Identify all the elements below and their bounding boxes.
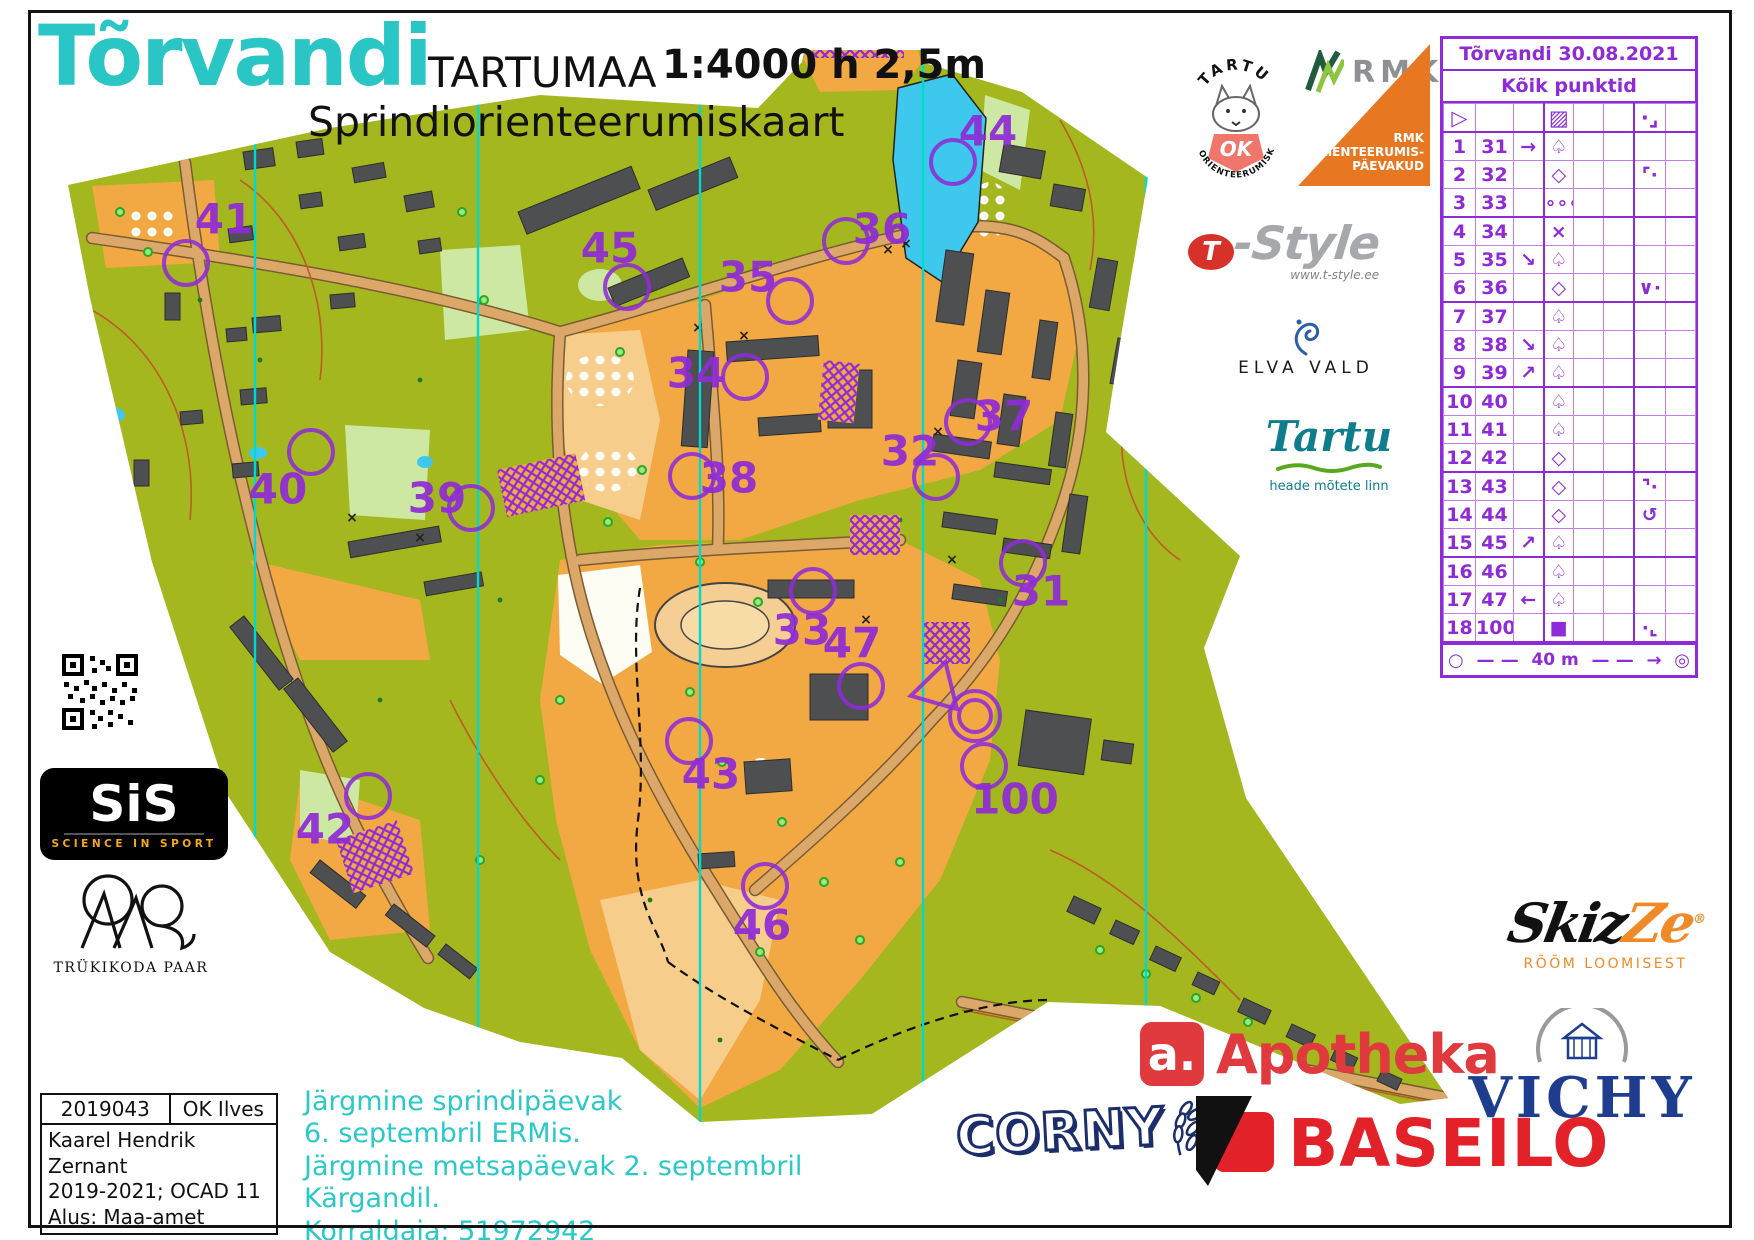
cd-col-g: ⌜· (1634, 161, 1666, 189)
last-control-symbol: ○ (1448, 650, 1464, 671)
cd-col-e (1574, 302, 1604, 331)
corny-name: CORNY (955, 1097, 1166, 1168)
rmk-paevakud-logo: RMK ORIENTEERUMIS- PÄEVAKUD (1298, 44, 1430, 186)
cd-col-e (1574, 614, 1604, 643)
cd-col-f (1604, 359, 1634, 388)
control-row: 1545↗♤ (1444, 529, 1696, 558)
cd-col-f (1604, 614, 1634, 643)
cd-col-code: 44 (1476, 501, 1514, 529)
cd-col-no: 3 (1444, 189, 1476, 218)
tartu-city-logo: Tartu heade mõtete linn (1254, 416, 1404, 494)
orienteering-map: ××× ××× ××× 4144453635343732384039313347… (30, 50, 1460, 1140)
skizze-part2: Ze (1619, 891, 1698, 955)
lynx-icon (1213, 86, 1259, 131)
skizze-tagline: RÕÕM LOOMISEST (1498, 956, 1713, 972)
cd-col-code: 36 (1476, 274, 1514, 303)
cd-col-h (1666, 217, 1696, 246)
cd-col-f (1604, 444, 1634, 473)
elva-ornament-icon (1286, 314, 1326, 356)
tstyle-logo: T -Style www.t-style.ee (1188, 220, 1379, 282)
cd-col-h (1666, 416, 1696, 444)
sheet-course-name: Kõik punktid (1443, 71, 1695, 103)
cd-col-d: ♤ (1544, 529, 1574, 558)
cd-col-e (1574, 529, 1604, 558)
cd-col-code: 33 (1476, 189, 1514, 218)
sheet-title: Tõrvandi 30.08.2021 (1443, 39, 1695, 71)
control-description-sheet: Tõrvandi 30.08.2021 Kõik punktid ▷ ▨ ·⌟ … (1440, 36, 1698, 678)
control-row: 18100■·⌞ (1444, 614, 1696, 643)
cd-col-g (1634, 416, 1666, 444)
cd-col-no: 7 (1444, 302, 1476, 331)
ok-monogram: OK (1220, 137, 1254, 161)
control-number: 40 (249, 465, 307, 514)
control-number: 46 (733, 901, 791, 950)
cd-col-h (1666, 387, 1696, 416)
ok-tartu-top-text: TARTU (1195, 55, 1274, 89)
cd-col-g (1634, 132, 1666, 161)
control-number: 34 (667, 349, 725, 398)
control-number: 100 (971, 775, 1059, 824)
cd-col-e (1574, 472, 1604, 501)
cd-col-no: 15 (1444, 529, 1476, 558)
cd-col-no: 5 (1444, 246, 1476, 274)
cd-col-d: ♤ (1544, 246, 1574, 274)
control-number: 38 (700, 454, 758, 503)
cd-col-code: 39 (1476, 359, 1514, 388)
cd-col-no: 14 (1444, 501, 1476, 529)
cd-col-code: 46 (1476, 557, 1514, 586)
cd-col-g (1634, 444, 1666, 473)
tstyle-t-icon: T (1188, 234, 1234, 270)
cd-col-f (1604, 529, 1634, 558)
apotheka-a-icon: a. (1140, 1022, 1204, 1086)
cd-col-f (1604, 501, 1634, 529)
corny-logo: CORNY (954, 1089, 1220, 1173)
cd-col-no: 11 (1444, 416, 1476, 444)
cd-col-g (1634, 189, 1666, 218)
cd-col-g (1634, 586, 1666, 614)
map-poster: ××× ××× ××× 4144453635343732384039313347… (0, 0, 1754, 1240)
region-label: TARTUMAA (428, 48, 657, 97)
cd-col-f (1604, 217, 1634, 246)
cd-col-g (1634, 529, 1666, 558)
control-sheet-body: ▷ ▨ ·⌟ 131→♤232◇⌜·333∘∘∘434×535↘♤636◇∨·7… (1444, 104, 1696, 643)
map-info-box: 2019043 OK Ilves Kaarel Hendrik Zernant … (40, 1093, 278, 1235)
cd-col-e (1574, 416, 1604, 444)
cd-col-g (1634, 359, 1666, 388)
control-number: 43 (682, 750, 740, 799)
sis-tagline: SCIENCE IN SPORT (52, 838, 217, 850)
control-number: 41 (195, 195, 253, 244)
cd-col-f (1604, 472, 1634, 501)
cd-col-e (1574, 189, 1604, 218)
page-title: Tõrvandi (38, 14, 431, 98)
cd-col-code: 42 (1476, 444, 1514, 473)
cd-col-d: ♤ (1544, 416, 1574, 444)
trukikoda-paar-label: TRÜKIKODA PAAR (46, 960, 216, 976)
cd-col-no: 17 (1444, 586, 1476, 614)
cd-col-c (1514, 189, 1544, 218)
cd-col-code: 40 (1476, 387, 1514, 416)
control-row: 131→♤ (1444, 132, 1696, 161)
control-row: 232◇⌜· (1444, 161, 1696, 189)
cd-col-g: ⌝· (1634, 472, 1666, 501)
cd-col-code: 43 (1476, 472, 1514, 501)
cd-col-code: 37 (1476, 302, 1514, 331)
tartu-city-tagline: heade mõtete linn (1254, 479, 1404, 494)
control-row: 434× (1444, 217, 1696, 246)
rmk-paevakud-line3: PÄEVAKUD (1352, 158, 1424, 173)
cd-col-code: 47 (1476, 586, 1514, 614)
cd-col-h (1666, 472, 1696, 501)
cd-col-g: ↺ (1634, 501, 1666, 529)
tartu-city-name: Tartu (1254, 416, 1404, 458)
cd-col-h (1666, 359, 1696, 388)
cd-col-c (1514, 217, 1544, 246)
control-row: 737♤ (1444, 302, 1696, 331)
cd-col-no: 12 (1444, 444, 1476, 473)
cd-col-c (1514, 472, 1544, 501)
cd-col-c: → (1514, 132, 1544, 161)
cd-col-no: 16 (1444, 557, 1476, 586)
cd-col-code: 100 (1476, 614, 1514, 643)
cd-col-h (1666, 302, 1696, 331)
cd-col-f (1604, 161, 1634, 189)
cd-col-code: 45 (1476, 529, 1514, 558)
cd-col-g (1634, 302, 1666, 331)
cd-col-f (1604, 586, 1634, 614)
tstyle-name: -Style (1232, 220, 1382, 266)
cd-col-no: 13 (1444, 472, 1476, 501)
cd-col-d: ◇ (1544, 274, 1574, 303)
cd-col-c (1514, 444, 1544, 473)
sis-logo: SiS SCIENCE IN SPORT (40, 768, 228, 860)
cd-col-g: ∨· (1634, 274, 1666, 303)
cd-col-e (1574, 161, 1604, 189)
cd-col-c (1514, 614, 1544, 643)
cd-col-e (1574, 246, 1604, 274)
control-number: 32 (881, 427, 939, 476)
cd-col-no: 2 (1444, 161, 1476, 189)
cartographer: Kaarel Hendrik Zernant (48, 1128, 270, 1179)
baseilo-name: BASEILO (1288, 1105, 1609, 1182)
cd-col-h (1666, 132, 1696, 161)
cd-col-c (1514, 416, 1544, 444)
start-row: ▷ ▨ ·⌟ (1444, 104, 1696, 133)
cd-col-h (1666, 274, 1696, 303)
cd-col-no: 9 (1444, 359, 1476, 388)
cd-col-no: 8 (1444, 331, 1476, 359)
rmk-paevakud-line2: ORIENTEERUMIS- (1308, 145, 1424, 159)
control-number: 39 (408, 474, 466, 523)
control-row: 1747←♤ (1444, 586, 1696, 614)
control-number: 31 (1012, 567, 1070, 616)
cd-col-e (1574, 132, 1604, 161)
cd-col-h (1666, 246, 1696, 274)
control-row: 1040♤ (1444, 387, 1696, 416)
cd-col-f (1604, 132, 1634, 161)
paar-monogram-icon (66, 872, 196, 954)
control-row: 1343◇⌝· (1444, 472, 1696, 501)
cd-col-h (1666, 331, 1696, 359)
cd-col-d: ∘∘∘ (1544, 189, 1574, 218)
cd-col-f (1604, 416, 1634, 444)
svg-text:×: × (414, 530, 426, 546)
cd-col-f (1604, 302, 1634, 331)
control-number: 47 (823, 619, 881, 668)
cd-col-f (1604, 557, 1634, 586)
cd-col-d: ■ (1544, 614, 1574, 643)
cd-col-e (1574, 444, 1604, 473)
cd-col-c (1514, 274, 1544, 303)
cd-col-d: ♤ (1544, 387, 1574, 416)
cd-col-code: 38 (1476, 331, 1514, 359)
cd-col-e (1574, 331, 1604, 359)
svg-text:×: × (738, 328, 750, 344)
control-row: 1646♤ (1444, 557, 1696, 586)
control-number: 42 (296, 805, 354, 854)
finish-symbol: ◎ (1674, 650, 1690, 671)
cd-col-d: ♤ (1544, 586, 1574, 614)
skizze-part1: Skiz (1503, 891, 1630, 955)
cd-col-d: ♤ (1544, 557, 1574, 586)
cd-col-h (1666, 586, 1696, 614)
control-number: 37 (975, 392, 1033, 441)
cd-col-d: ♤ (1544, 359, 1574, 388)
finish-distance-row: ○ — — 40 m — — → ◎ (1443, 643, 1695, 675)
cd-col-c: ↗ (1514, 359, 1544, 388)
control-row: 838↘♤ (1444, 331, 1696, 359)
cd-col-h (1666, 189, 1696, 218)
ok-tartu-logo: TARTU OK ORIENTEERUMISKLUBI (1194, 42, 1278, 200)
cd-col-g (1634, 387, 1666, 416)
baseilo-logo: BASEILO (1186, 1096, 1609, 1190)
control-row: 1242◇ (1444, 444, 1696, 473)
cd-col-f (1604, 189, 1634, 218)
vichy-pavilion-icon (1522, 1008, 1642, 1066)
tstyle-url: www.t-style.ee (1234, 268, 1379, 282)
svg-text:×: × (346, 510, 358, 526)
cd-col-f (1604, 246, 1634, 274)
apotheka-logo: a. Apotheka (1140, 1022, 1499, 1086)
cd-col-c (1514, 161, 1544, 189)
cd-col-code: 31 (1476, 132, 1514, 161)
cd-col-e (1574, 274, 1604, 303)
sis-name: SiS (89, 779, 178, 829)
trukikoda-paar-logo: TRÜKIKODA PAAR (46, 872, 216, 976)
map-id: 2019043 (42, 1095, 171, 1123)
registered-mark: ® (1691, 912, 1704, 927)
cd-col-e (1574, 359, 1604, 388)
cd-col-e (1574, 501, 1604, 529)
announcement-text: Järgmine sprindipäevak 6. septembril ERM… (304, 1086, 802, 1240)
control-row: 1141♤ (1444, 416, 1696, 444)
qr-code (62, 654, 138, 730)
svg-text:×: × (692, 320, 704, 336)
control-number: 44 (959, 107, 1017, 156)
baseilo-emblem-icon (1186, 1096, 1278, 1190)
cd-col-no: 6 (1444, 274, 1476, 303)
control-row: 535↘♤ (1444, 246, 1696, 274)
cd-col-e (1574, 217, 1604, 246)
cd-col-d: ♤ (1544, 302, 1574, 331)
control-row: 939↗♤ (1444, 359, 1696, 388)
cd-col-code: 34 (1476, 217, 1514, 246)
finish-distance: 40 m (1531, 650, 1578, 670)
cd-col-c (1514, 501, 1544, 529)
cd-col-c (1514, 387, 1544, 416)
control-row: 636◇∨· (1444, 274, 1696, 303)
cd-col-no: 1 (1444, 132, 1476, 161)
control-row: 1444◇↺ (1444, 501, 1696, 529)
skizze-logo: SkizZe® RÕÕM LOOMISEST (1498, 896, 1713, 972)
control-number: 45 (581, 224, 639, 273)
cd-col-d: ♤ (1544, 132, 1574, 161)
cd-col-f (1604, 274, 1634, 303)
cd-col-d: ◇ (1544, 444, 1574, 473)
cd-col-c (1514, 302, 1544, 331)
cd-col-g (1634, 331, 1666, 359)
club-name: OK Ilves (171, 1095, 276, 1123)
cd-col-no: 18 (1444, 614, 1476, 643)
cd-col-e (1574, 387, 1604, 416)
cd-col-d: ♤ (1544, 331, 1574, 359)
cd-col-code: 32 (1476, 161, 1514, 189)
cd-col-c: ↘ (1514, 331, 1544, 359)
svg-text:×: × (946, 552, 958, 568)
cd-col-e (1574, 586, 1604, 614)
cd-col-h (1666, 529, 1696, 558)
cd-col-c (1514, 557, 1544, 586)
cd-col-no: 4 (1444, 217, 1476, 246)
elva-vald-label: ELVA VALD (1236, 358, 1376, 378)
cd-col-h (1666, 161, 1696, 189)
cd-col-h (1666, 501, 1696, 529)
cd-col-d: ◇ (1544, 501, 1574, 529)
cd-col-g: ·⌞ (1634, 614, 1666, 643)
cd-col-h (1666, 614, 1696, 643)
scale-label: 1:4000 h 2,5m (662, 42, 986, 88)
cd-col-g (1634, 246, 1666, 274)
cd-col-c: ↘ (1514, 246, 1544, 274)
apotheka-name: Apotheka (1216, 1023, 1499, 1086)
control-description-table: ▷ ▨ ·⌟ 131→♤232◇⌜·333∘∘∘434×535↘♤636◇∨·7… (1443, 103, 1696, 643)
cd-col-d: ◇ (1544, 161, 1574, 189)
cd-col-no: 10 (1444, 387, 1476, 416)
elva-vald-logo: ELVA VALD (1236, 314, 1376, 378)
cd-col-h (1666, 557, 1696, 586)
page-subtitle: Sprindiorienteerumiskaart (308, 98, 845, 146)
cd-col-g (1634, 557, 1666, 586)
start-feature-symbol: ▨ (1544, 104, 1574, 133)
cd-col-f (1604, 387, 1634, 416)
cd-col-c: ← (1514, 586, 1544, 614)
cd-col-code: 41 (1476, 416, 1514, 444)
cd-col-e (1574, 557, 1604, 586)
start-symbol: ▷ (1444, 104, 1476, 133)
svg-text:TARTU: TARTU (1195, 55, 1274, 89)
control-number: 35 (719, 253, 777, 302)
cd-col-h (1666, 444, 1696, 473)
base-material: Alus: Maa-amet (48, 1205, 270, 1231)
map-years-software: 2019-2021; OCAD 11 (48, 1179, 270, 1205)
cd-col-g (1634, 217, 1666, 246)
cd-col-d: ◇ (1544, 472, 1574, 501)
rmk-paevakud-line1: RMK (1394, 131, 1425, 145)
cd-col-d: × (1544, 217, 1574, 246)
tartu-wave-icon (1274, 461, 1384, 473)
cd-col-c: ↗ (1514, 529, 1544, 558)
cd-col-f (1604, 331, 1634, 359)
control-number: 36 (853, 205, 911, 254)
cd-col-code: 35 (1476, 246, 1514, 274)
control-row: 333∘∘∘ (1444, 189, 1696, 218)
